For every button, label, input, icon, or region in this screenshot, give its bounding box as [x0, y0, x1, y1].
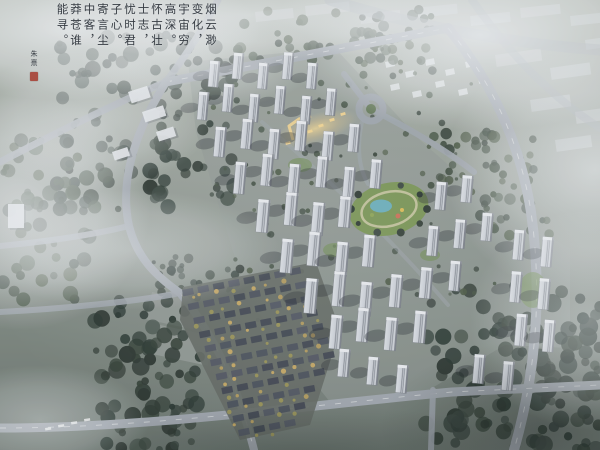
aerial-render-image: 烟云渺 变化， 宇宙穷 高深。 怀古壮 士志， 忧时君 子心。 寄言尘 中客， … [0, 0, 600, 450]
masterplan-scene [0, 0, 600, 450]
fog-haze [0, 0, 600, 450]
